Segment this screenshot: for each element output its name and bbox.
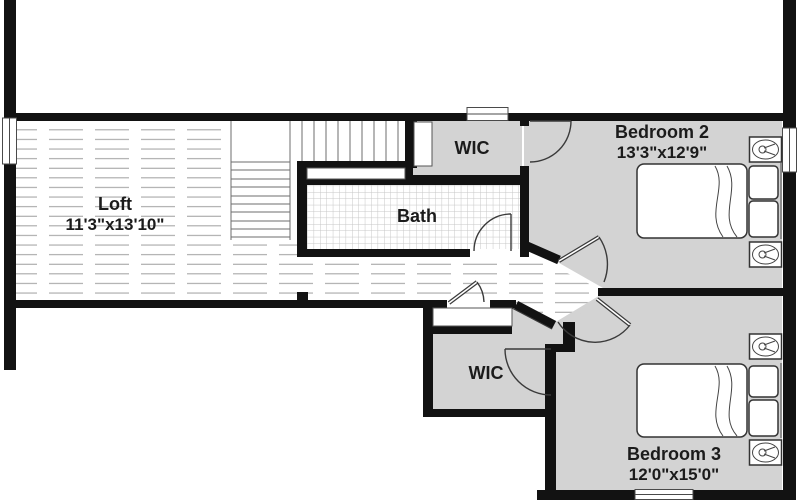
wall-bed3-left-lower [545, 344, 556, 500]
wall-top [4, 113, 783, 121]
bed3-nightstand-lamp-2 [750, 440, 782, 465]
loft-window [3, 118, 17, 164]
wic1-window [467, 108, 508, 121]
wall-wic2-top [423, 326, 512, 334]
linen-shelf [433, 308, 512, 326]
wall-bath-right-a [520, 113, 529, 126]
wic1-shelf [414, 122, 432, 166]
wall-left-lower [4, 164, 16, 370]
bed3-nightstand-lamp-1 [750, 334, 782, 359]
bedroom3-window [635, 490, 693, 500]
wall-hall-bottom [4, 300, 447, 308]
loft-label: Loft [98, 194, 132, 214]
wall-bath-bottom [297, 249, 470, 257]
floorplan: Loft 11'3"x13'10" Bath WIC WIC Bedroom 2… [0, 0, 800, 500]
bedroom3-dims: 12'0"x15'0" [629, 465, 719, 484]
bedroom2-dims: 13'3"x12'9" [617, 143, 707, 162]
wall-left-upper [4, 0, 16, 118]
wall-bottom-b [693, 490, 796, 500]
bed3-pillow-1 [749, 366, 778, 397]
wall-wic1-bottom [405, 175, 529, 183]
wall-bath-left [297, 161, 307, 257]
bed2-pillow-2 [749, 201, 778, 237]
stair-foot-floor [231, 240, 297, 300]
wall-jamb [297, 292, 308, 302]
bed2-nightstand-lamp-2 [750, 242, 782, 267]
bed2-pillow-1 [749, 166, 778, 199]
wall-wic2-bottom [423, 409, 555, 417]
bed2-nightstand-lamp-1 [750, 137, 782, 162]
bath-label: Bath [397, 206, 437, 226]
wall-wic1-left [405, 121, 413, 183]
bedroom2-label: Bedroom 2 [615, 122, 709, 142]
wic2-label: WIC [469, 363, 504, 383]
floorplan-drawing: Loft 11'3"x13'10" Bath WIC WIC Bedroom 2… [0, 0, 800, 500]
bedroom3-label: Bedroom 3 [627, 444, 721, 464]
bed3-pillow-2 [749, 400, 778, 436]
wall-wic2-left [423, 300, 433, 417]
bedroom2-window [783, 128, 797, 172]
wall-bottom-a [537, 490, 635, 500]
wall-hall-bottom-2 [490, 300, 516, 308]
wall-ledge-top [297, 161, 408, 168]
wic1-label: WIC [455, 138, 490, 158]
wall-bedroom-divider [598, 288, 796, 296]
bath-ledge [307, 168, 405, 179]
wall-right-lower [783, 172, 796, 500]
wall-right-upper [783, 0, 796, 128]
loft-dims: 11'3"x13'10" [66, 215, 165, 234]
